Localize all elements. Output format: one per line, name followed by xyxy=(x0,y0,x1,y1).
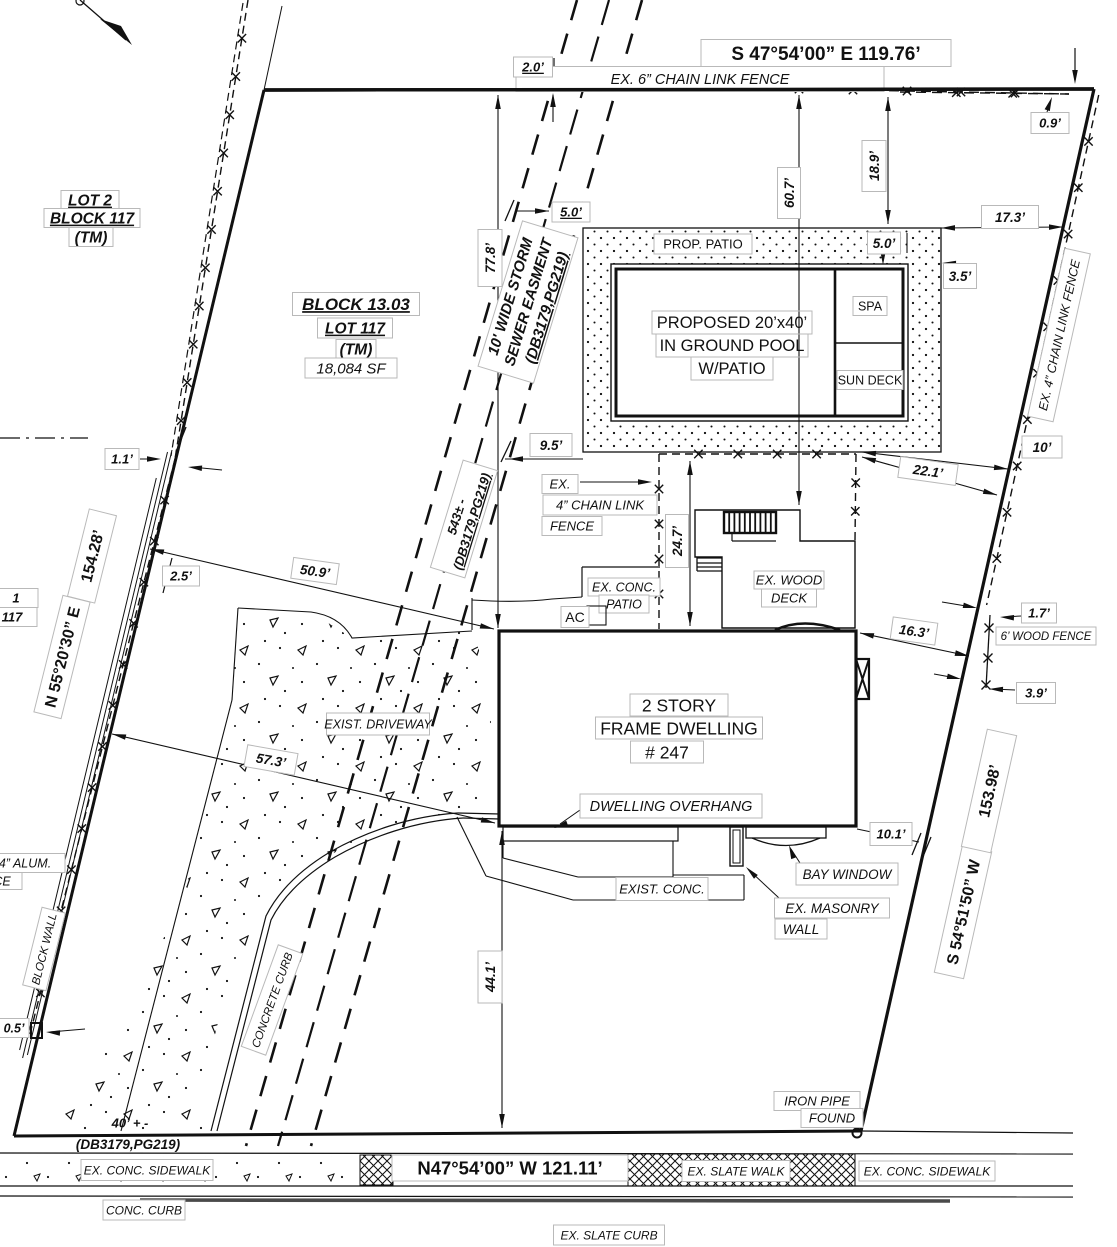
svg-text:IN GROUND POOL: IN GROUND POOL xyxy=(660,337,805,355)
svg-text:4” ALUM.: 4” ALUM. xyxy=(0,857,51,871)
svg-text:W/PATIO: W/PATIO xyxy=(698,360,765,378)
svg-text:3.5’: 3.5’ xyxy=(949,269,972,284)
svg-text:SPA: SPA xyxy=(858,300,883,314)
svg-text:IRON PIPE: IRON PIPE xyxy=(784,1094,850,1109)
svg-text:N47°54’00” W 121.11’: N47°54’00” W 121.11’ xyxy=(417,1158,602,1179)
svg-text:5.0’: 5.0’ xyxy=(560,205,582,220)
svg-text:9.5’: 9.5’ xyxy=(540,438,563,453)
svg-text:PATIO: PATIO xyxy=(606,598,642,612)
svg-text:(DB3179,PG219): (DB3179,PG219) xyxy=(76,1137,181,1152)
svg-text:EX. WOOD: EX. WOOD xyxy=(756,573,822,588)
svg-text:EX. 6” CHAIN LINK FENCE: EX. 6” CHAIN LINK FENCE xyxy=(611,72,790,88)
svg-text:(TM): (TM) xyxy=(75,230,108,247)
svg-text:18,084 SF: 18,084 SF xyxy=(316,360,386,377)
svg-text:10’: 10’ xyxy=(1033,440,1052,455)
svg-text:6’ WOOD FENCE: 6’ WOOD FENCE xyxy=(1001,631,1092,643)
svg-text:CONC. CURB: CONC. CURB xyxy=(106,1203,182,1217)
svg-text:EX. CONC. SIDEWALK: EX. CONC. SIDEWALK xyxy=(864,1164,991,1178)
svg-text:LOT 2: LOT 2 xyxy=(68,193,112,210)
svg-text:117: 117 xyxy=(2,610,23,625)
svg-text:18.9’: 18.9’ xyxy=(867,151,882,181)
svg-text:0.9’: 0.9’ xyxy=(1039,116,1061,131)
svg-text:EX. MASONRY: EX. MASONRY xyxy=(785,901,879,916)
svg-text:FRAME DWELLING: FRAME DWELLING xyxy=(600,718,758,738)
svg-text:PROPOSED 20’x40’: PROPOSED 20’x40’ xyxy=(657,314,807,332)
svg-text:CE: CE xyxy=(0,875,11,889)
svg-text:2 STORY: 2 STORY xyxy=(642,695,717,715)
svg-text:EX. SLATE CURB: EX. SLATE CURB xyxy=(560,1228,657,1242)
svg-text:1.7’: 1.7’ xyxy=(1028,606,1050,621)
svg-text:DECK: DECK xyxy=(771,591,808,606)
svg-text:SUN DECK: SUN DECK xyxy=(838,374,903,388)
svg-text:4” CHAIN LINK: 4” CHAIN LINK xyxy=(556,498,645,513)
svg-text:0.5’: 0.5’ xyxy=(4,1022,25,1036)
svg-text:EX. CONC. SIDEWALK: EX. CONC. SIDEWALK xyxy=(84,1163,211,1177)
svg-text:1.1’: 1.1’ xyxy=(111,452,133,467)
svg-text:5.0’: 5.0’ xyxy=(873,236,896,251)
svg-text:60.7’: 60.7’ xyxy=(782,178,797,208)
svg-text:77.8’: 77.8’ xyxy=(483,243,498,273)
svg-text:24.7’: 24.7’ xyxy=(670,526,685,557)
svg-text:DWELLING OVERHANG: DWELLING OVERHANG xyxy=(590,799,753,815)
svg-text:EXIST. DRIVEWAY: EXIST. DRIVEWAY xyxy=(324,718,433,732)
svg-text:EX. CONC.: EX. CONC. xyxy=(592,581,656,595)
svg-text:(TM): (TM) xyxy=(340,342,373,359)
svg-text:# 247: # 247 xyxy=(645,742,689,762)
svg-text:2.0’: 2.0’ xyxy=(521,60,544,75)
svg-text:17.3’: 17.3’ xyxy=(995,210,1025,225)
svg-text:BLOCK 13.03: BLOCK 13.03 xyxy=(302,295,410,314)
svg-text:FOUND: FOUND xyxy=(809,1111,855,1126)
svg-text:EX.: EX. xyxy=(550,477,571,492)
svg-text:AC: AC xyxy=(565,609,584,625)
svg-text:44.1’: 44.1’ xyxy=(483,962,498,993)
svg-text:LOT 117: LOT 117 xyxy=(325,321,386,338)
svg-text:BAY WINDOW: BAY WINDOW xyxy=(803,867,893,882)
svg-text:2.5’: 2.5’ xyxy=(169,569,192,584)
svg-text:3.9’: 3.9’ xyxy=(1025,686,1047,701)
svg-text:1: 1 xyxy=(12,591,19,606)
svg-text:BLOCK 117: BLOCK 117 xyxy=(50,211,136,228)
svg-text:S 47°54’00” E 119.76’: S 47°54’00” E 119.76’ xyxy=(731,44,920,65)
svg-text:WALL: WALL xyxy=(783,922,820,937)
svg-text:PROP. PATIO: PROP. PATIO xyxy=(663,237,742,252)
svg-text:FENCE: FENCE xyxy=(550,519,594,534)
svg-text:40’ + -: 40’ + - xyxy=(111,1116,149,1131)
svg-text:EXIST. CONC.: EXIST. CONC. xyxy=(619,882,704,897)
svg-text:10.1’: 10.1’ xyxy=(877,827,906,842)
svg-text:EX. SLATE WALK: EX. SLATE WALK xyxy=(688,1164,786,1178)
